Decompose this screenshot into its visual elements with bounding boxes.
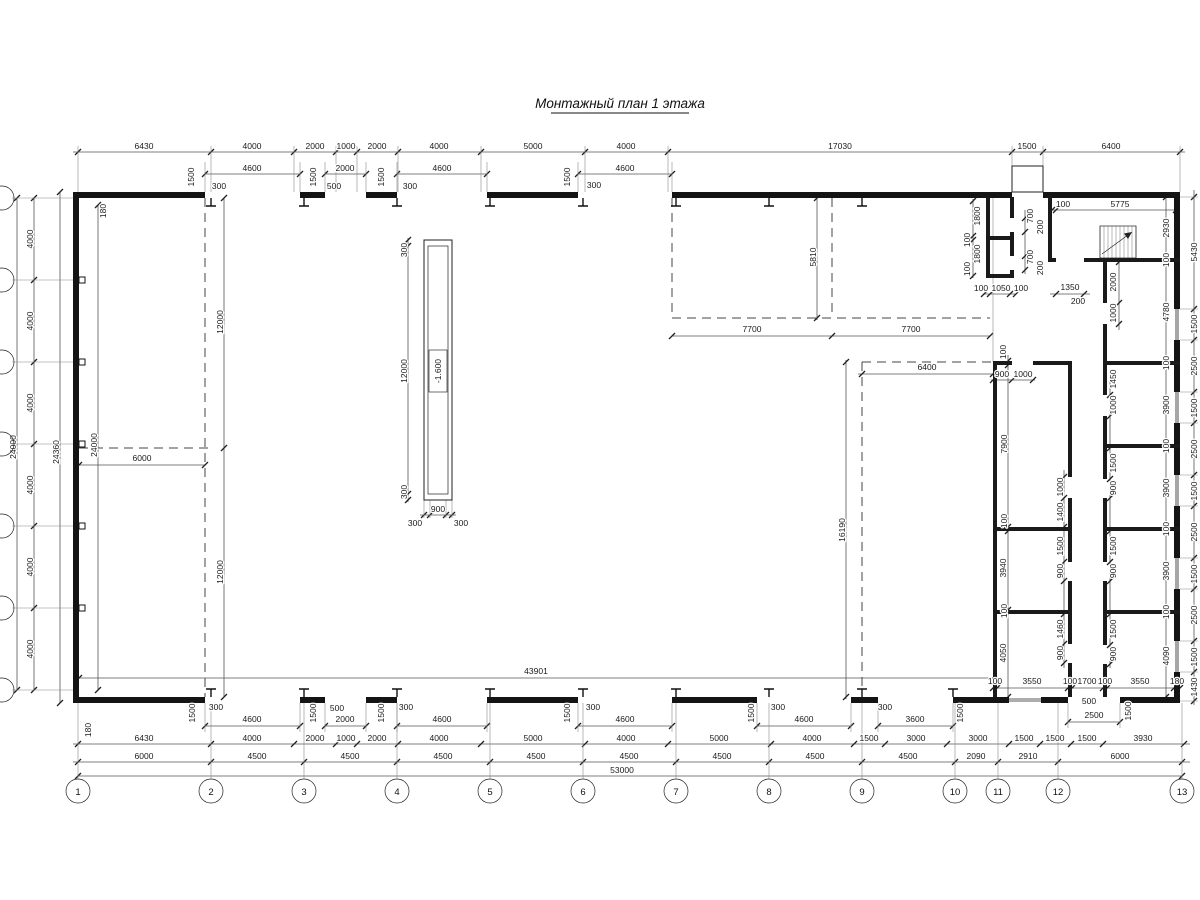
axis-bubble (0, 514, 14, 538)
axis-number: 11 (993, 787, 1003, 798)
axis-number: 1 (75, 787, 80, 798)
dim-label: 4600 (433, 714, 452, 724)
dim-label: 500 (1082, 696, 1096, 706)
dim-label: 3900 (1161, 561, 1171, 580)
stair-direction-arrow (1124, 232, 1132, 239)
window (1174, 392, 1180, 423)
dim-label: 4500 (248, 751, 267, 761)
wing-room-dims: 100 7900 100 3940 100 4050 900 1000 1000… (988, 345, 1184, 686)
dim-label: 300 (399, 485, 409, 499)
dim-label: 4500 (713, 751, 732, 761)
window (1174, 558, 1180, 589)
dim-label: 4000 (617, 733, 636, 743)
dim-label: 7700 (743, 324, 762, 334)
dim-label: 1000 (337, 141, 356, 151)
dim-label: 100 (1056, 199, 1070, 209)
dim-label: 1500 (1108, 536, 1118, 555)
dim-label: 5000 (524, 733, 543, 743)
dim-label: 1500 (1189, 481, 1199, 500)
dim-label: 4600 (243, 163, 262, 173)
dim-label: 100 (1161, 439, 1171, 453)
dim-label: 1800 (972, 206, 982, 225)
axis-bubble: 3 (292, 779, 316, 803)
dim-label: 1500 (1189, 564, 1199, 583)
dim-label: 4000 (243, 733, 262, 743)
dim-label: 100 (999, 514, 1009, 528)
dim-label: 4050 (998, 643, 1008, 662)
axis-bubble: 9 (850, 779, 874, 803)
axis-number: 12 (1053, 787, 1064, 798)
dim-label: 1500 (186, 167, 196, 186)
axis-bubble: 8 (757, 779, 781, 803)
dim-label: 2000 (336, 163, 355, 173)
axis-bubble: 10 (943, 779, 967, 803)
axis-number: 6 (580, 787, 585, 798)
dim-label: 300 (878, 702, 892, 712)
dim-label: 1500 (1046, 733, 1065, 743)
dim-label: 1500 (1078, 733, 1097, 743)
dim-label: 5775 (1111, 199, 1130, 209)
dim-label: 900 (1055, 564, 1065, 578)
dim-label: 4000 (430, 733, 449, 743)
dim-label: 100 (1014, 283, 1028, 293)
dim-label: 3600 (906, 714, 925, 724)
dim-label: 1000 (337, 733, 356, 743)
axis-number: 7 (673, 787, 678, 798)
dim-label: 300 (212, 181, 226, 191)
inspection-pit: -1.600 (424, 240, 452, 500)
dim-label: 100 (962, 262, 972, 276)
dim-label: 1500 (1189, 647, 1199, 666)
dim-label: 1500 (1055, 536, 1065, 555)
dim-label: 4500 (806, 751, 825, 761)
axis-bubble (0, 186, 14, 210)
dim-label: 5000 (710, 733, 729, 743)
dim-label: 100 (962, 233, 972, 247)
dim-label: 6430 (135, 141, 154, 151)
dim-label: 1500 (308, 167, 318, 186)
dim-label: 1400 (1055, 502, 1065, 521)
dim-label: 200 (1071, 296, 1085, 306)
dim-label: 6000 (135, 751, 154, 761)
axis-bubble (0, 596, 14, 620)
dim-label: 100 (1161, 356, 1171, 370)
dim-label: 100 (1161, 605, 1171, 619)
dim-label: 2000 (1108, 272, 1118, 291)
dim-label: 100 (988, 676, 1002, 686)
dim-label: 2500 (1189, 605, 1199, 624)
floor-plan-sheet: Монтажный план 1 этажа (0, 0, 1200, 900)
axis-number: 5 (487, 787, 492, 798)
dim-label: 4500 (341, 751, 360, 761)
dim-label: 4000 (25, 557, 35, 576)
dim-label: 200 (1035, 261, 1045, 275)
dim-label: 2500 (1189, 522, 1199, 541)
dim-label: 6430 (135, 733, 154, 743)
dim-label: 12000 (215, 310, 225, 334)
dim-label: 3000 (907, 733, 926, 743)
dim-label: 1000 (1014, 369, 1033, 379)
dim-label: 1450 (1108, 369, 1118, 388)
dim-label: 1500 (376, 167, 386, 186)
dim-label: 6400 (1102, 141, 1121, 151)
dim-label: 300 (399, 243, 409, 257)
dim-label: 4500 (899, 751, 918, 761)
dim-label: 180 (83, 723, 93, 737)
dim-label: 1000 (1108, 303, 1118, 322)
dim-label: 4000 (25, 229, 35, 248)
dim-label: 4000 (25, 311, 35, 330)
dim-label: 1800 (972, 244, 982, 263)
window (1174, 309, 1180, 340)
dim-label: 6000 (1111, 751, 1130, 761)
top-dimension-chain: 6430 4000 2000 1000 2000 4000 5000 4000 … (135, 141, 1121, 191)
dim-label: 2500 (1189, 439, 1199, 458)
dim-label: 2000 (336, 714, 355, 724)
dim-label: 3550 (1131, 676, 1150, 686)
dim-label: 16190 (837, 518, 847, 542)
dim-label: 5430 (1189, 242, 1199, 261)
dim-label: 3940 (998, 558, 1008, 577)
dim-label: 1430 (1189, 677, 1199, 696)
axis-bubble: 4 (385, 779, 409, 803)
axis-bubble (0, 350, 14, 374)
dim-label: 1500 (955, 703, 965, 722)
dim-label: 4000 (25, 475, 35, 494)
dim-label: 700 (1025, 250, 1035, 264)
axis-number: 8 (766, 787, 771, 798)
dim-label: 1000 (1108, 395, 1118, 414)
dim-label: 6000 (133, 453, 152, 463)
dim-label: 3900 (1161, 478, 1171, 497)
dim-label: 12000 (399, 359, 409, 383)
dim-label: 100 (1098, 676, 1112, 686)
dim-label: 300 (586, 702, 600, 712)
layout-dashed-lines (79, 198, 993, 697)
dim-label: 7900 (999, 434, 1009, 453)
axis-number: 13 (1177, 787, 1188, 798)
axis-bubbles-bottom: 1 2 3 4 5 6 7 8 9 10 11 12 13 (66, 779, 1194, 803)
dim-label: 5810 (808, 247, 818, 266)
dim-label: 3930 (1134, 733, 1153, 743)
axis-bubble: 6 (571, 779, 595, 803)
hall-interior-dims: 12000 12000 6000 300 12000 300 300 900 3… (133, 243, 937, 584)
dim-label: 100 (1063, 676, 1077, 686)
dim-label: 900 (431, 504, 445, 514)
dim-label: 24000 (89, 433, 99, 457)
dim-label: 180 (98, 204, 108, 218)
dim-label: 300 (209, 702, 223, 712)
axis-number: 10 (950, 787, 961, 798)
dim-label: 1500 (376, 703, 386, 722)
dim-label: 2500 (1085, 710, 1104, 720)
dim-label: 17030 (828, 141, 852, 151)
dim-label: 2930 (1161, 218, 1171, 237)
dim-label: 4000 (430, 141, 449, 151)
axis-bubble: 12 (1046, 779, 1070, 803)
dim-label: 100 (998, 345, 1008, 359)
axis-bubble: 7 (664, 779, 688, 803)
dim-label: 1500 (746, 703, 756, 722)
dim-label: 4000 (25, 639, 35, 658)
dim-label: 900 (1108, 564, 1118, 578)
dim-label: 300 (399, 702, 413, 712)
dim-label: 300 (403, 181, 417, 191)
dim-label: 1500 (1189, 398, 1199, 417)
dim-label: 4600 (795, 714, 814, 724)
dim-label: 4000 (617, 141, 636, 151)
dim-label: 53000 (610, 765, 634, 775)
dim-label: 1500 (1018, 141, 1037, 151)
dim-label: 200 (1035, 220, 1045, 234)
steel-columns (79, 198, 958, 697)
dim-label: 180 (1170, 676, 1184, 686)
staircase (1100, 226, 1136, 258)
dim-label: 100 (999, 604, 1009, 618)
entrance-vestibule (1012, 166, 1043, 192)
dim-label: 100 (1161, 522, 1171, 536)
axis-number: 4 (394, 787, 399, 798)
partition-walls (986, 197, 1180, 697)
dim-label: 4000 (25, 393, 35, 412)
axis-bubble (0, 268, 14, 292)
dim-label: 300 (771, 702, 785, 712)
dim-label: 300 (587, 180, 601, 190)
dim-label: 1500 (1015, 733, 1034, 743)
facade-windows (1009, 309, 1180, 703)
dim-label: 4500 (620, 751, 639, 761)
generated-dim-lines (12, 146, 1198, 779)
dim-label: 500 (327, 181, 341, 191)
dim-label: 1500 (187, 703, 197, 722)
dim-label: 4600 (243, 714, 262, 724)
dim-label: 1050 (992, 283, 1011, 293)
dim-label: 1500 (860, 733, 879, 743)
dim-label: 5000 (524, 141, 543, 151)
dim-label: 1500 (308, 703, 318, 722)
dim-label: 4500 (527, 751, 546, 761)
dim-label: 1350 (1061, 282, 1080, 292)
dim-label: 2090 (967, 751, 986, 761)
axis-bubble: 11 (986, 779, 1010, 803)
dim-label: 2000 (306, 733, 325, 743)
dim-label: 700 (1025, 209, 1035, 223)
axis-number: 2 (208, 787, 213, 798)
dim-label: 2500 (1189, 356, 1199, 375)
axis-bubble: 1 (66, 779, 90, 803)
dim-label: 500 (330, 703, 344, 713)
dim-label: 1500 (1108, 453, 1118, 472)
dim-label: 1500 (1189, 314, 1199, 333)
dim-label: 2000 (368, 733, 387, 743)
dim-label: 300 (454, 518, 468, 528)
axis-bubble: 13 (1170, 779, 1194, 803)
floor-plan-drawing: Монтажный план 1 этажа (0, 0, 1200, 900)
dim-label: 1700 (1078, 676, 1097, 686)
dim-label: 4600 (616, 714, 635, 724)
dim-label: 900 (1108, 647, 1118, 661)
dim-label: 4000 (803, 733, 822, 743)
dim-label: 1000 (1055, 477, 1065, 496)
axis-bubble: 5 (478, 779, 502, 803)
dim-label: 1500 (562, 703, 572, 722)
dim-label: 4600 (433, 163, 452, 173)
dim-label: 2000 (306, 141, 325, 151)
dim-label: 900 (995, 369, 1009, 379)
outer-walls (73, 192, 1180, 703)
window (1174, 475, 1180, 506)
dim-label: 4090 (1161, 646, 1171, 665)
left-dimension-chains: 4000 4000 4000 4000 4000 4000 24000 2436… (8, 204, 108, 737)
dim-label: 3000 (969, 733, 988, 743)
dim-label: 2910 (1019, 751, 1038, 761)
dim-label: 3550 (1023, 676, 1042, 686)
dim-label: 900 (1055, 646, 1065, 660)
window (1174, 641, 1180, 672)
dim-label: 4500 (434, 751, 453, 761)
dim-label: 1500 (1108, 619, 1118, 638)
dim-label: 2000 (368, 141, 387, 151)
drawing-title: Монтажный план 1 этажа (535, 96, 705, 111)
dim-label: 7700 (902, 324, 921, 334)
dim-label: 1500 (1123, 701, 1133, 720)
dim-label: 3900 (1161, 395, 1171, 414)
axis-bubble (0, 678, 14, 702)
dim-label: 1500 (562, 167, 572, 186)
axis-bubble: 2 (199, 779, 223, 803)
dim-label: 100 (1161, 253, 1171, 267)
window (1009, 697, 1041, 703)
dim-label: 24360 (51, 440, 61, 464)
dim-label: 300 (408, 518, 422, 528)
dim-label: 12000 (215, 560, 225, 584)
dim-label: 4000 (243, 141, 262, 151)
axis-number: 3 (301, 787, 306, 798)
pit-elevation-mark: -1.600 (433, 359, 443, 383)
axis-number: 9 (859, 787, 864, 798)
dim-label: 43901 (524, 666, 548, 676)
dim-label: 100 (974, 283, 988, 293)
dim-label: 4600 (616, 163, 635, 173)
dim-label: 6400 (918, 362, 937, 372)
dim-label: 900 (1108, 481, 1118, 495)
dim-label: 1460 (1055, 619, 1065, 638)
dim-label: 4780 (1161, 302, 1171, 321)
